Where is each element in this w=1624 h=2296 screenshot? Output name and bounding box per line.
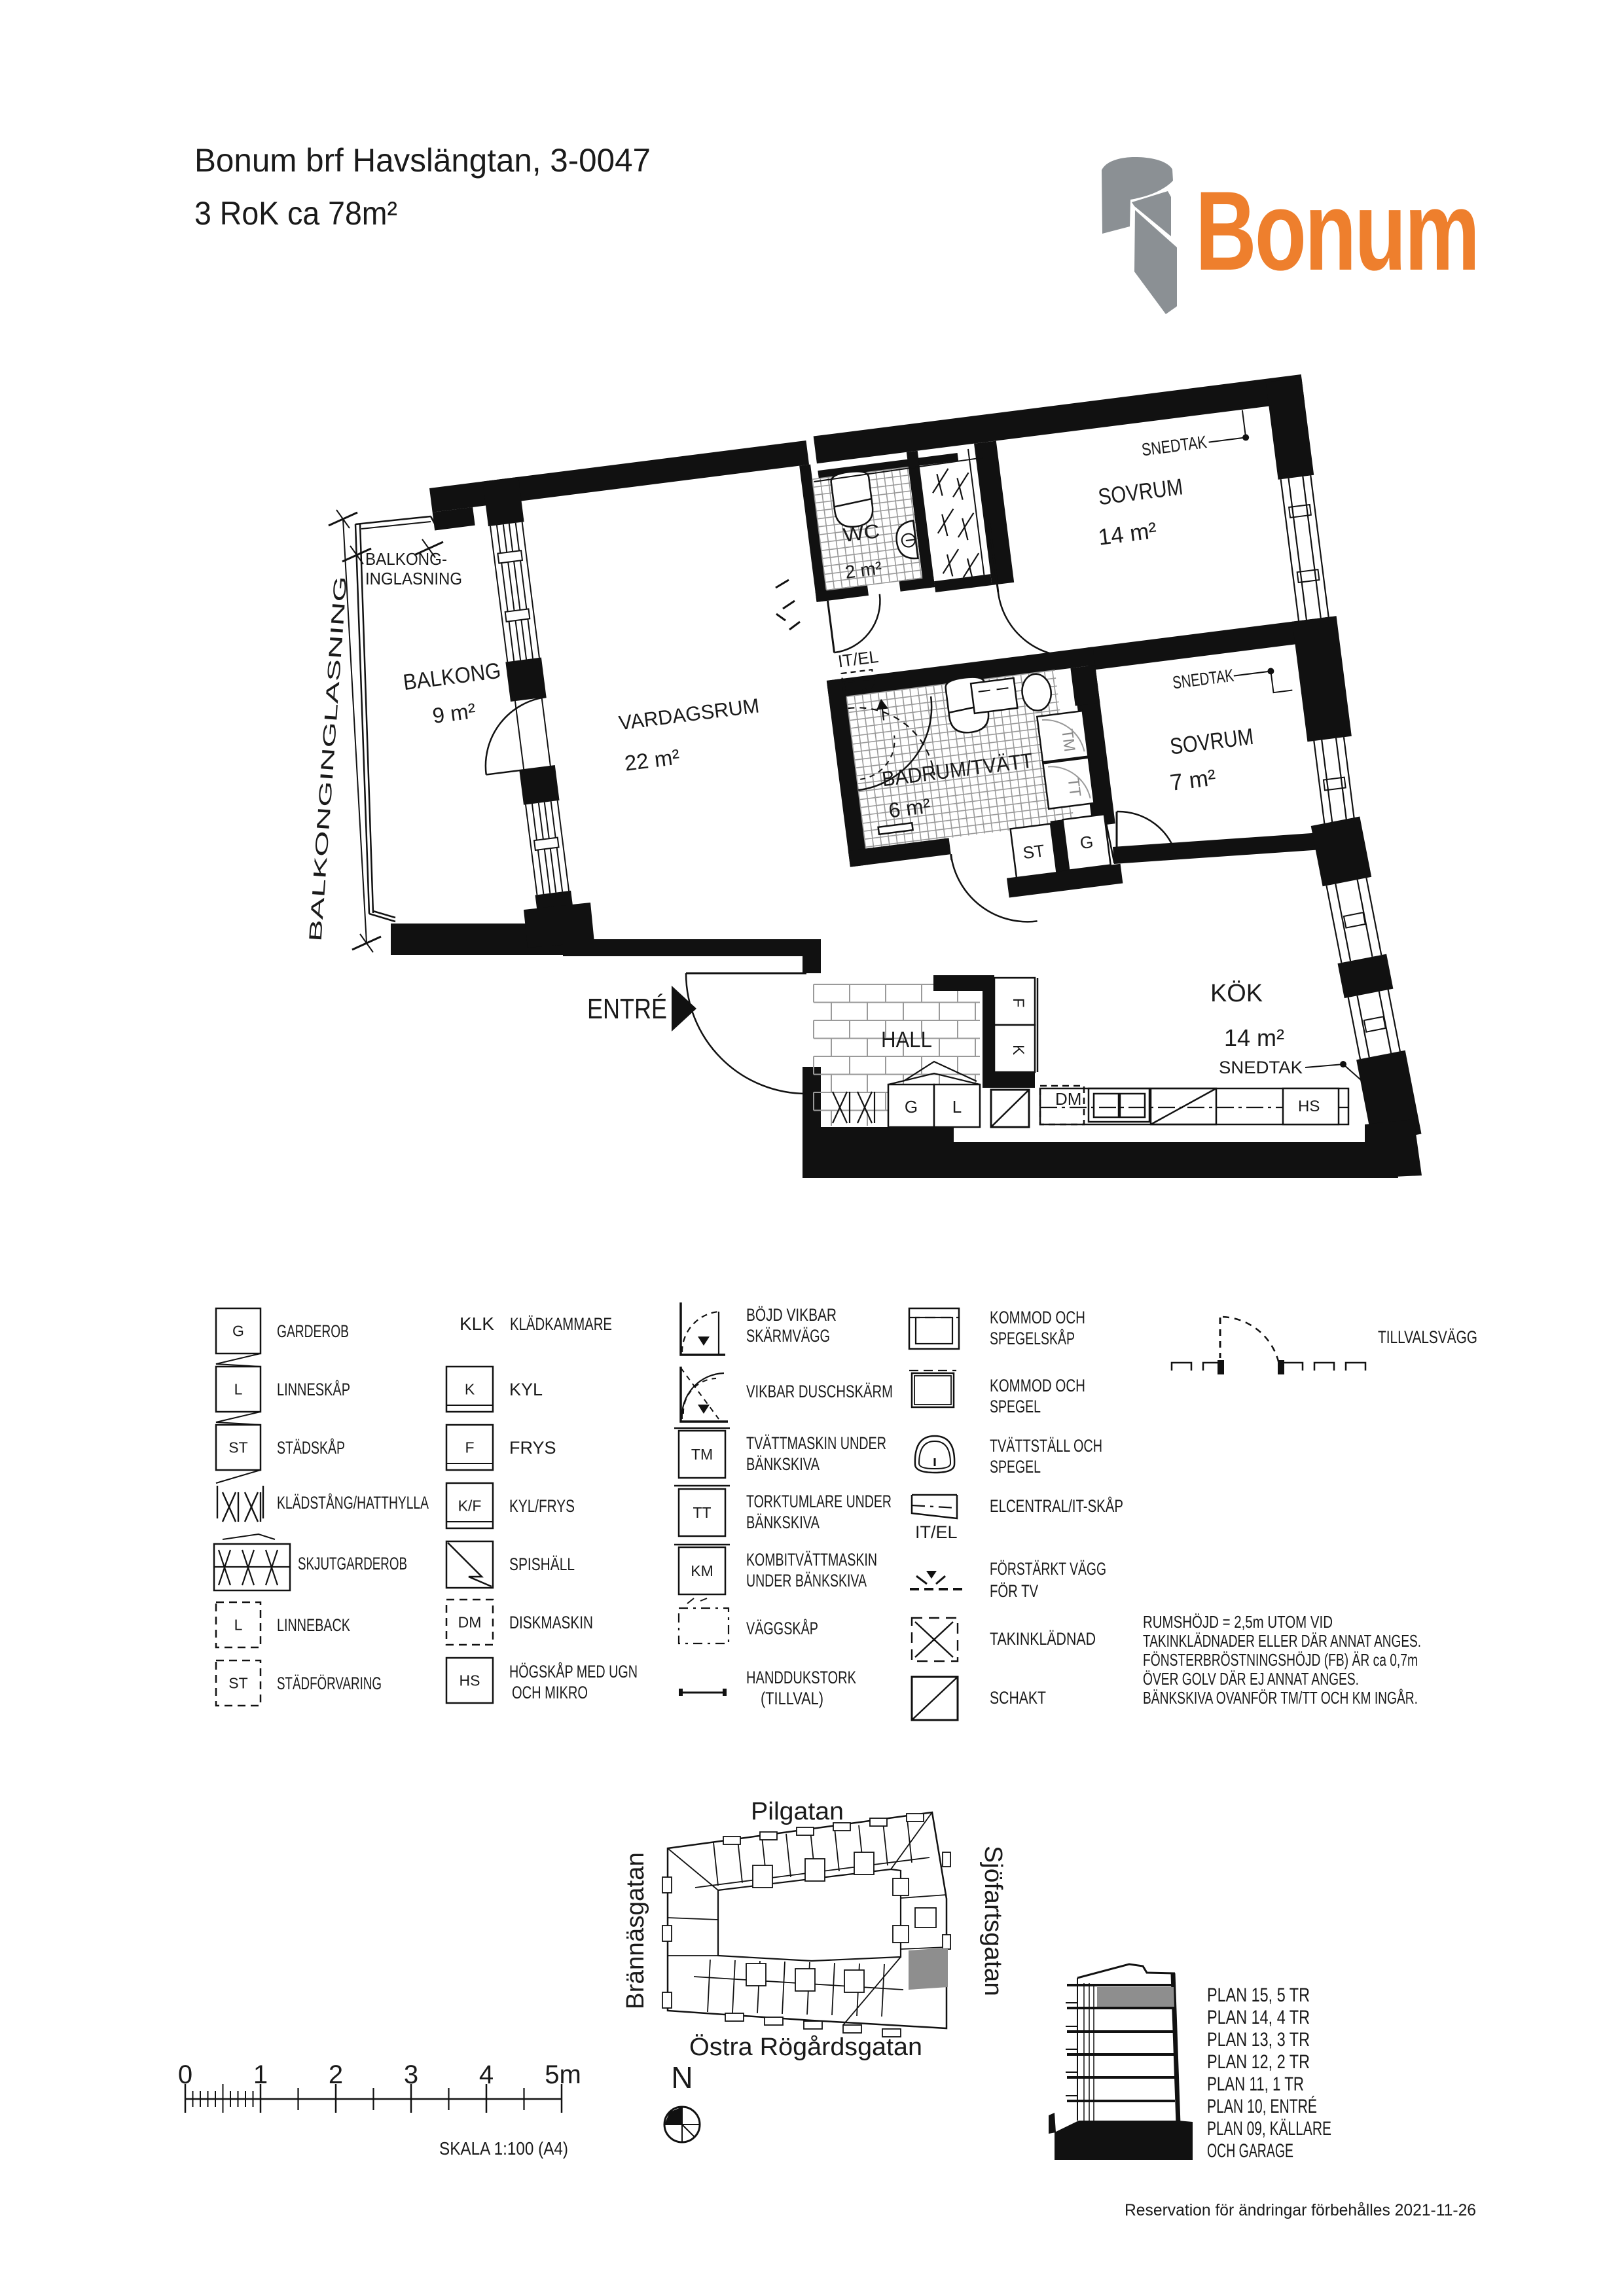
svg-text:TVÄTTSTÄLL OCH: TVÄTTSTÄLL OCH <box>990 1436 1102 1456</box>
svg-text:PLAN 13, 3 TR: PLAN 13, 3 TR <box>1207 2029 1310 2051</box>
svg-text:Brännäsgatan: Brännäsgatan <box>622 1852 649 2009</box>
svg-text:KOMMOD OCH: KOMMOD OCH <box>990 1308 1085 1327</box>
svg-text:TVÄTTMASKIN UNDER: TVÄTTMASKIN UNDER <box>746 1433 886 1453</box>
svg-text:L: L <box>952 1097 962 1117</box>
svg-text:ELCENTRAL/IT-SKÅP: ELCENTRAL/IT-SKÅP <box>990 1496 1123 1516</box>
svg-text:PLAN 15, 5 TR: PLAN 15, 5 TR <box>1207 1984 1310 2006</box>
svg-text:KLK: KLK <box>460 1314 494 1334</box>
svg-text:DM: DM <box>1055 1089 1081 1109</box>
svg-text:INGLASNING: INGLASNING <box>365 569 462 588</box>
svg-text:BÖJD VIKBAR: BÖJD VIKBAR <box>746 1305 837 1325</box>
svg-text:KOMBITVÄTTMASKIN: KOMBITVÄTTMASKIN <box>746 1550 877 1570</box>
svg-text:HANDDUKSTORK: HANDDUKSTORK <box>746 1668 856 1687</box>
svg-text:SNEDTAK: SNEDTAK <box>1219 1058 1303 1077</box>
svg-text:G: G <box>232 1323 244 1340</box>
svg-text:KOMMOD OCH: KOMMOD OCH <box>990 1376 1085 1395</box>
svg-text:Bonum brf Havslängtan, 3-0047: Bonum brf Havslängtan, 3-0047 <box>194 142 651 179</box>
svg-text:TM: TM <box>1058 728 1078 753</box>
svg-text:Sjöfartsgatan: Sjöfartsgatan <box>979 1846 1007 1996</box>
svg-text:SKÄRMVÄGG: SKÄRMVÄGG <box>746 1326 830 1346</box>
svg-text:SCHAKT: SCHAKT <box>990 1688 1046 1708</box>
svg-text:HALL: HALL <box>881 1028 932 1052</box>
svg-text:FÖNSTERBRÖSTNINGSHÖJD (FB) ÄR: FÖNSTERBRÖSTNINGSHÖJD (FB) ÄR ca 0,7m <box>1143 1650 1418 1670</box>
svg-text:SPISHÄLL: SPISHÄLL <box>509 1554 575 1574</box>
svg-text:KM: KM <box>691 1562 713 1579</box>
svg-text:OCH GARAGE: OCH GARAGE <box>1207 2140 1293 2162</box>
svg-text:BÄNKSKIVA OVANFÖR TM/TT OCH KM: BÄNKSKIVA OVANFÖR TM/TT OCH KM INGÅR. <box>1143 1688 1418 1708</box>
svg-text:KLÄDSTÅNG/HATTHYLLA: KLÄDSTÅNG/HATTHYLLA <box>277 1492 429 1513</box>
svg-text:14 m²: 14 m² <box>1224 1024 1284 1051</box>
svg-text:DM: DM <box>458 1614 482 1631</box>
svg-text:ST: ST <box>228 1675 247 1692</box>
svg-text:F: F <box>1009 998 1027 1008</box>
svg-text:L: L <box>234 1617 243 1634</box>
svg-text:KYL/FRYS: KYL/FRYS <box>509 1496 575 1516</box>
svg-text:STÄDFÖRVARING: STÄDFÖRVARING <box>277 1674 382 1693</box>
svg-text:IT/EL: IT/EL <box>915 1522 958 1542</box>
svg-text:3 RoK ca 78m²: 3 RoK ca 78m² <box>194 195 397 232</box>
svg-text:G: G <box>905 1097 918 1117</box>
svg-text:SPEGEL: SPEGEL <box>990 1457 1041 1477</box>
svg-text:KYL: KYL <box>509 1380 543 1399</box>
svg-text:SPEGELSKÅP: SPEGELSKÅP <box>990 1328 1075 1348</box>
svg-text:GARDEROB: GARDEROB <box>277 1321 349 1341</box>
svg-text:BÄNKSKIVA: BÄNKSKIVA <box>746 1454 820 1474</box>
svg-text:PLAN 14, 4 TR: PLAN 14, 4 TR <box>1207 2007 1310 2028</box>
svg-text:BÄNKSKIVA: BÄNKSKIVA <box>746 1513 820 1532</box>
svg-text:PLAN 11, 1 TR: PLAN 11, 1 TR <box>1207 2073 1304 2095</box>
svg-text:Östra Rögårdsgatan: Östra Rögårdsgatan <box>689 2034 922 2061</box>
svg-text:Bonum: Bonum <box>1195 168 1478 294</box>
svg-text:K/F: K/F <box>458 1498 482 1515</box>
svg-text:G: G <box>1079 832 1094 853</box>
svg-text:N: N <box>671 2060 693 2094</box>
svg-text:FÖRSTÄRKT VÄGG: FÖRSTÄRKT VÄGG <box>990 1559 1106 1579</box>
svg-text:HS: HS <box>460 1672 480 1689</box>
svg-text:HS: HS <box>1298 1098 1320 1115</box>
svg-text:PLAN 09, KÄLLARE: PLAN 09, KÄLLARE <box>1207 2118 1331 2140</box>
svg-text:SKALA 1:100 (A4): SKALA 1:100 (A4) <box>439 2138 568 2159</box>
svg-text:DISKMASKIN: DISKMASKIN <box>509 1613 593 1632</box>
svg-text:VÄGGSKÅP: VÄGGSKÅP <box>746 1618 818 1638</box>
svg-text:SKJUTGARDEROB: SKJUTGARDEROB <box>298 1554 407 1573</box>
svg-text:L: L <box>234 1381 243 1398</box>
svg-text:FRYS: FRYS <box>509 1438 556 1458</box>
svg-text:SPEGEL: SPEGEL <box>990 1397 1041 1416</box>
svg-text:Pilgatan: Pilgatan <box>751 1798 844 1825</box>
svg-text:HÖGSKÅP MED UGN: HÖGSKÅP MED UGN <box>509 1661 638 1681</box>
svg-text:TAKINKLÄDNADER ELLER DÄR ANNAT: TAKINKLÄDNADER ELLER DÄR ANNAT ANGES. <box>1143 1631 1421 1651</box>
svg-text:BALKONG-: BALKONG- <box>365 549 447 569</box>
svg-text:LINNEBACK: LINNEBACK <box>277 1615 350 1635</box>
svg-text:K: K <box>465 1381 475 1398</box>
svg-text:ST: ST <box>228 1439 247 1456</box>
svg-text:TAKINKLÄDNAD: TAKINKLÄDNAD <box>990 1629 1096 1649</box>
svg-text:FÖR TV: FÖR TV <box>990 1581 1038 1601</box>
svg-text:LINNESKÅP: LINNESKÅP <box>277 1379 350 1399</box>
svg-text:TT: TT <box>693 1504 711 1521</box>
svg-text:WC: WC <box>842 520 881 547</box>
svg-text:VIKBAR DUSCHSKÄRM: VIKBAR DUSCHSKÄRM <box>746 1382 893 1401</box>
svg-text:ST: ST <box>1022 840 1046 863</box>
svg-text:ENTRÉ: ENTRÉ <box>587 993 667 1025</box>
svg-text:5m: 5m <box>545 2060 581 2089</box>
svg-text:PLAN 10, ENTRÉ: PLAN 10, ENTRÉ <box>1207 2096 1317 2117</box>
svg-text:F: F <box>465 1439 474 1456</box>
svg-text:ÖVER GOLV DÄR EJ ANNAT ANGES.: ÖVER GOLV DÄR EJ ANNAT ANGES. <box>1143 1669 1359 1689</box>
svg-text:TILLVALSVÄGG: TILLVALSVÄGG <box>1378 1327 1477 1347</box>
svg-text:(TILLVAL): (TILLVAL) <box>761 1689 823 1708</box>
svg-text:KLÄDKAMMARE: KLÄDKAMMARE <box>510 1314 612 1334</box>
svg-text:PLAN 12, 2 TR: PLAN 12, 2 TR <box>1207 2051 1310 2073</box>
svg-text:OCH MIKRO: OCH MIKRO <box>512 1683 588 1702</box>
svg-text:STÄDSKÅP: STÄDSKÅP <box>277 1437 345 1458</box>
svg-text:TORKTUMLARE UNDER: TORKTUMLARE UNDER <box>746 1492 892 1511</box>
svg-text:RUMSHÖJD = 2,5m UTOM VID: RUMSHÖJD = 2,5m UTOM VID <box>1143 1612 1333 1632</box>
svg-text:KÖK: KÖK <box>1210 980 1263 1007</box>
svg-text:UNDER BÄNKSKIVA: UNDER BÄNKSKIVA <box>746 1571 867 1590</box>
svg-text:TM: TM <box>691 1446 713 1463</box>
svg-text:K: K <box>1009 1045 1027 1055</box>
svg-text:Reservation för ändringar förb: Reservation för ändringar förbehålles 20… <box>1125 2201 1476 2219</box>
